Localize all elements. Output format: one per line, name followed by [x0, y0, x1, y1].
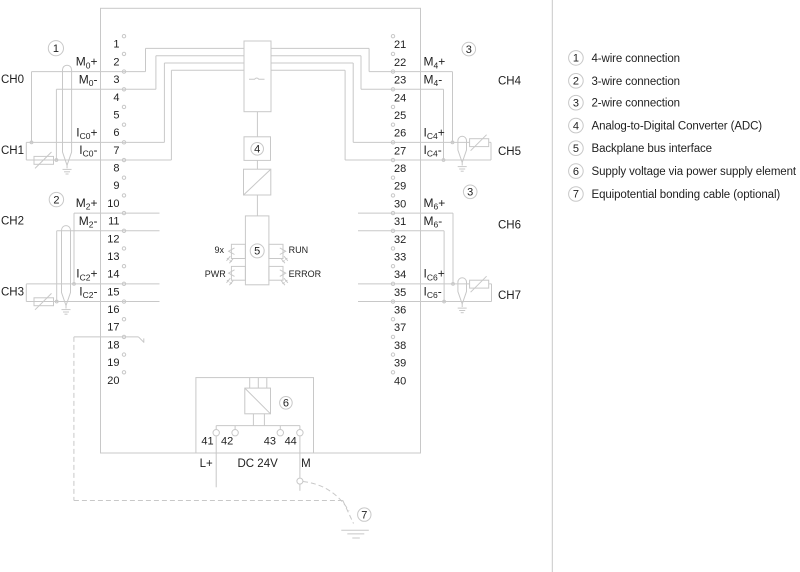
svg-text:CH6: CH6: [498, 219, 521, 231]
svg-text:18: 18: [107, 339, 119, 351]
svg-text:M2-: M2-: [79, 214, 98, 230]
svg-text:26: 26: [394, 128, 406, 140]
svg-text:7: 7: [113, 145, 119, 157]
svg-text:16: 16: [107, 304, 119, 316]
svg-text:ERROR: ERROR: [289, 269, 322, 279]
svg-text:5: 5: [113, 109, 119, 121]
svg-text:4: 4: [254, 144, 260, 156]
svg-text:40: 40: [394, 375, 406, 387]
svg-text:3: 3: [573, 97, 579, 109]
svg-text:36: 36: [394, 305, 406, 317]
svg-text:CH1: CH1: [1, 145, 24, 157]
svg-text:1: 1: [53, 43, 59, 55]
svg-text:31: 31: [394, 216, 406, 228]
svg-text:42: 42: [221, 436, 233, 448]
svg-text:4-wire connection: 4-wire connection: [592, 53, 680, 65]
svg-text:M6-: M6-: [424, 214, 443, 230]
svg-text:CH4: CH4: [498, 76, 522, 88]
svg-text:L+: L+: [200, 458, 213, 470]
svg-text:39: 39: [394, 358, 406, 370]
svg-text:37: 37: [394, 322, 406, 334]
svg-text:22: 22: [394, 57, 406, 69]
svg-text:24: 24: [394, 92, 406, 104]
svg-text:2: 2: [573, 76, 579, 88]
svg-text:Analog-to-Digital Converter (A: Analog-to-Digital Converter (ADC): [592, 121, 763, 133]
svg-text:Backplane bus interface: Backplane bus interface: [592, 143, 712, 155]
svg-text:6: 6: [283, 398, 289, 410]
svg-text:CH2: CH2: [1, 216, 24, 228]
svg-text:CH0: CH0: [1, 74, 24, 86]
svg-text:44: 44: [285, 436, 297, 448]
svg-text:M: M: [301, 458, 311, 470]
svg-text:3: 3: [467, 187, 473, 199]
svg-text:1: 1: [113, 39, 119, 51]
svg-text:2: 2: [113, 56, 119, 68]
svg-text:M4-: M4-: [424, 72, 443, 88]
svg-text:33: 33: [394, 251, 406, 263]
svg-text:7: 7: [361, 509, 367, 521]
svg-text:41: 41: [201, 436, 213, 448]
svg-text:17: 17: [107, 322, 119, 334]
svg-text:1: 1: [573, 53, 579, 65]
svg-text:Equipotential bonding cable (o: Equipotential bonding cable (optional): [592, 189, 781, 201]
svg-text:13: 13: [107, 251, 119, 263]
svg-text:CH3: CH3: [1, 286, 24, 298]
svg-text:8: 8: [113, 163, 119, 175]
svg-text:9x: 9x: [214, 245, 224, 255]
svg-text:25: 25: [394, 110, 406, 122]
svg-text:5: 5: [254, 246, 260, 258]
svg-text:DC 24V: DC 24V: [238, 458, 279, 470]
svg-text:3: 3: [466, 44, 472, 56]
svg-text:6: 6: [573, 166, 579, 178]
svg-text:32: 32: [394, 234, 406, 246]
svg-text:6: 6: [113, 127, 119, 139]
svg-text:10: 10: [107, 198, 119, 210]
svg-text:Supply voltage via power suppl: Supply voltage via power supply element: [592, 166, 797, 178]
svg-text:3: 3: [113, 74, 119, 86]
svg-text:12: 12: [107, 233, 119, 245]
svg-text:34: 34: [394, 269, 406, 281]
svg-text:2-wire connection: 2-wire connection: [592, 98, 680, 110]
svg-text:38: 38: [394, 340, 406, 352]
svg-text:11: 11: [108, 216, 119, 228]
svg-text:21: 21: [394, 39, 406, 51]
svg-text:4: 4: [573, 120, 579, 132]
svg-text:23: 23: [394, 75, 406, 87]
svg-text:35: 35: [394, 287, 406, 299]
svg-text:CH7: CH7: [498, 290, 521, 302]
svg-text:14: 14: [107, 269, 119, 281]
svg-text:9: 9: [113, 180, 119, 192]
svg-text:43: 43: [264, 436, 276, 448]
svg-text:CH5: CH5: [498, 146, 521, 158]
svg-text:29: 29: [394, 181, 406, 193]
svg-text:27: 27: [394, 145, 406, 157]
svg-text:28: 28: [394, 163, 406, 175]
svg-text:PWR: PWR: [205, 269, 226, 279]
svg-text:4: 4: [113, 92, 119, 104]
svg-text:RUN: RUN: [289, 245, 309, 255]
svg-text:2: 2: [53, 194, 59, 206]
svg-text:5: 5: [573, 143, 579, 155]
svg-text:30: 30: [394, 198, 406, 210]
svg-text:20: 20: [107, 375, 119, 387]
svg-text:7: 7: [573, 189, 579, 201]
svg-text:15: 15: [107, 286, 119, 298]
svg-text:M0-: M0-: [79, 72, 98, 88]
svg-text:3-wire connection: 3-wire connection: [592, 76, 680, 88]
svg-text:19: 19: [107, 357, 119, 369]
